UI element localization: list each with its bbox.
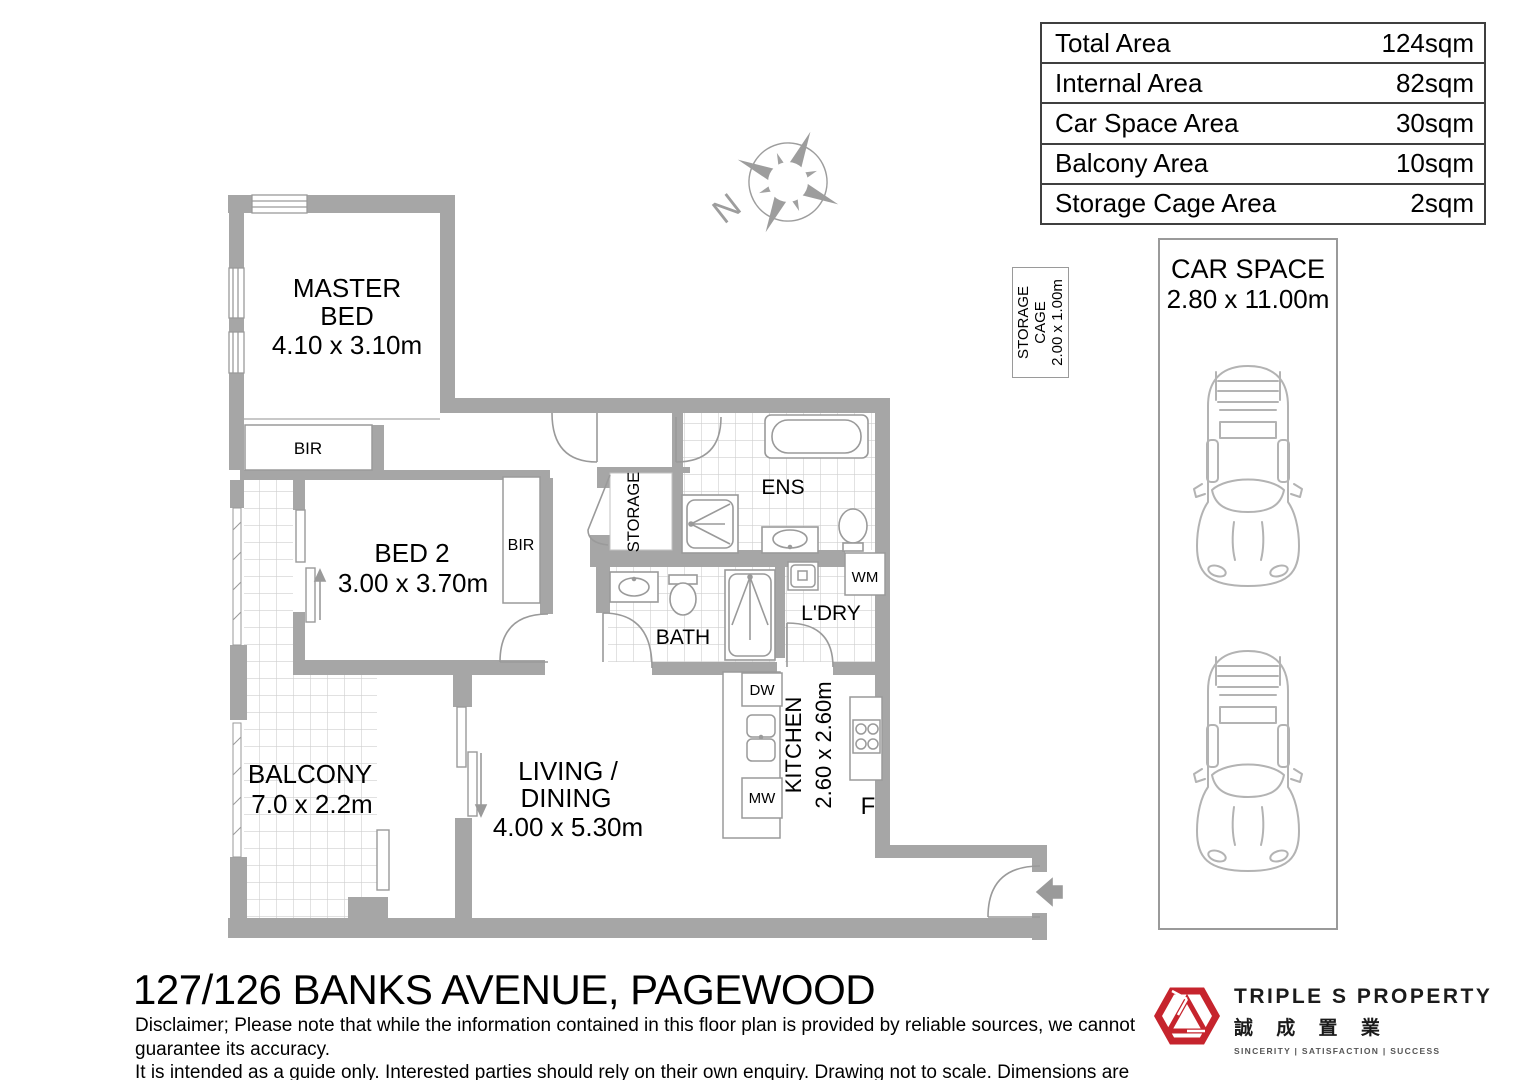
area-label: Internal Area: [1042, 68, 1396, 99]
disclaimer-line-1: Disclaimer; Please note that while the i…: [135, 1014, 1145, 1061]
balcony-label: BALCONY: [248, 759, 372, 789]
car-space-dims: 2.80 x 11.00m: [1160, 284, 1336, 314]
bathtub-icon: [765, 415, 868, 458]
dw-label: DW: [750, 682, 776, 699]
car-space-box: CAR SPACE 2.80 x 11.00m: [1158, 238, 1338, 930]
logo-text-block: TRIPLE S PROPERTY 誠 成 置 業 SINCERITY | SA…: [1234, 983, 1492, 1056]
mw-label: MW: [749, 790, 776, 807]
vanity-sink-icon: [610, 572, 658, 602]
shower-icon: [725, 570, 775, 660]
master-bed-dims: 4.10 x 3.10m: [272, 330, 422, 360]
logo-chinese: 誠 成 置 業: [1234, 1013, 1492, 1040]
disclaimer: Disclaimer; Please note that while the i…: [135, 1014, 1145, 1080]
vanity-sink-icon: [762, 527, 818, 553]
agency-logo: TRIPLE S PROPERTY 誠 成 置 業 SINCERITY | SA…: [1154, 983, 1492, 1056]
master-bed-label-2: BED: [320, 301, 373, 331]
table-row: Balcony Area 10sqm: [1042, 145, 1484, 185]
area-value: 10sqm: [1396, 148, 1484, 179]
arrow-up-icon: [315, 570, 325, 620]
logo-tagline: SINCERITY | SATISFACTION | SUCCESS: [1234, 1046, 1492, 1056]
laundry-tub-icon: [788, 562, 818, 590]
table-row: Total Area 124sqm: [1042, 24, 1484, 64]
triple-s-logo-icon: [1154, 983, 1220, 1049]
toilet-icon: [669, 575, 697, 615]
entry-arrow-icon: [1037, 879, 1062, 905]
address-title: 127/126 BANKS AVENUE, PAGEWOOD: [133, 966, 875, 1014]
ens-label: ENS: [761, 476, 804, 499]
balcony-dims: 7.0 x 2.2m: [251, 789, 372, 819]
master-bed-label-1: MASTER: [293, 273, 401, 303]
bed2-dims: 3.00 x 3.70m: [338, 568, 488, 598]
cooktop-icon: [853, 720, 880, 753]
area-label: Storage Cage Area: [1042, 188, 1410, 219]
kitchen-dims: 2.60 x 2.60m: [811, 681, 836, 808]
area-summary-table: Total Area 124sqm Internal Area 82sqm Ca…: [1040, 22, 1486, 225]
table-row: Car Space Area 30sqm: [1042, 104, 1484, 144]
area-label: Total Area: [1042, 28, 1382, 59]
living-dims: 4.00 x 5.30m: [493, 812, 643, 842]
table-row: Storage Cage Area 2sqm: [1042, 185, 1484, 223]
storage-label: STORAGE: [625, 472, 643, 552]
bir2-label: BIR: [508, 537, 535, 554]
bir-label: BIR: [294, 439, 322, 458]
area-value: 2sqm: [1410, 188, 1484, 219]
kitchen-label: KITCHEN: [781, 697, 806, 794]
floor-plan-page: Total Area 124sqm Internal Area 82sqm Ca…: [0, 0, 1528, 1080]
area-value: 82sqm: [1396, 68, 1484, 99]
wm-label: WM: [852, 569, 879, 586]
car-icon: [1192, 645, 1304, 877]
fridge-label: F: [861, 793, 876, 820]
area-value: 30sqm: [1396, 108, 1484, 139]
area-label: Balcony Area: [1042, 148, 1396, 179]
bed2-label: BED 2: [374, 538, 449, 568]
disclaimer-line-2: It is intended as a guide only. Interest…: [135, 1061, 1145, 1080]
area-value: 124sqm: [1382, 28, 1485, 59]
laundry-label: L'DRY: [801, 602, 861, 625]
area-label: Car Space Area: [1042, 108, 1396, 139]
logo-name: TRIPLE S PROPERTY: [1234, 985, 1492, 1009]
table-row: Internal Area 82sqm: [1042, 64, 1484, 104]
living-label-1: LIVING /: [518, 756, 618, 786]
toilet-icon: [839, 509, 867, 551]
bath-label: BATH: [656, 626, 710, 649]
car-space-title: CAR SPACE: [1160, 254, 1336, 284]
shower-icon: [682, 495, 738, 553]
floor-plan-drawing: MASTER BED 4.10 x 3.10m BIR BED 2 3.00 x…: [225, 185, 1075, 945]
car-icon: [1192, 360, 1304, 592]
living-label-2: DINING: [521, 783, 612, 813]
